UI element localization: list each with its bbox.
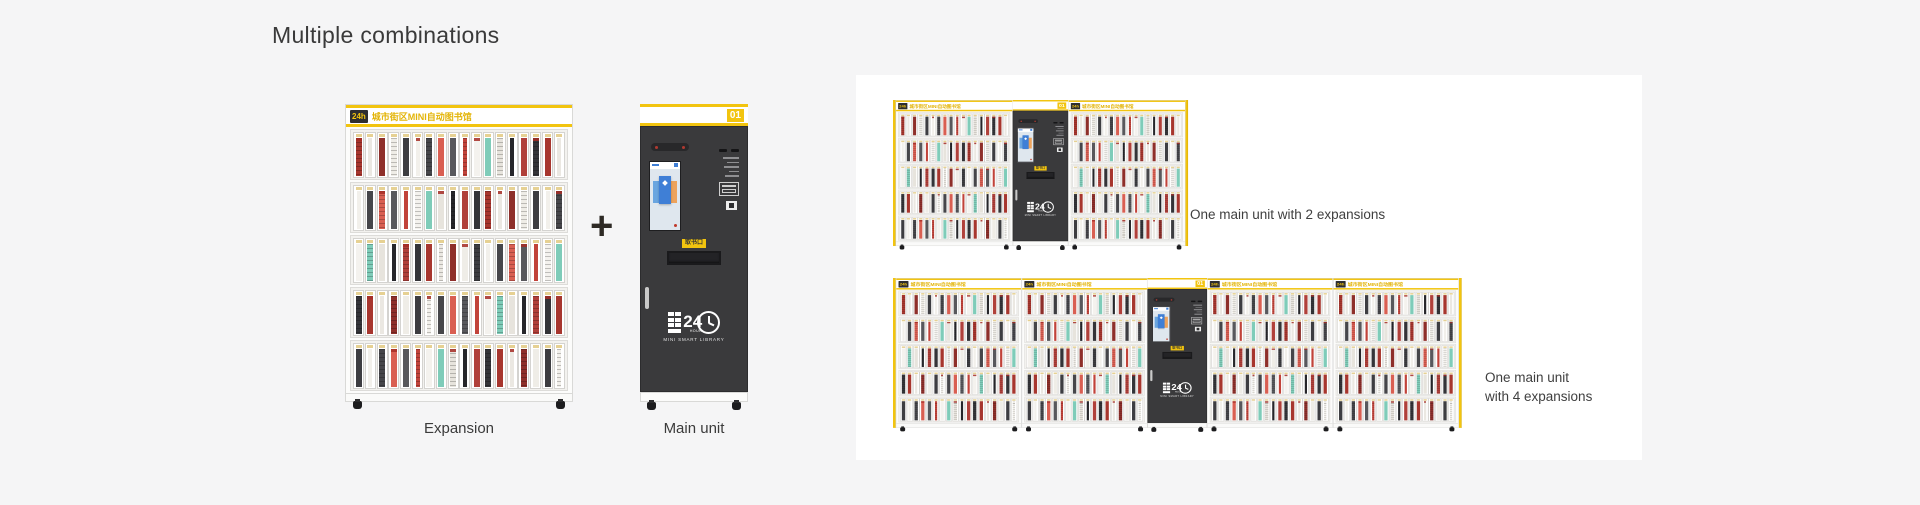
book-slot [1303, 292, 1309, 315]
book-spine [956, 117, 958, 136]
unit-header: 01 [1013, 100, 1069, 111]
book-spine [1098, 194, 1101, 213]
book-slot [424, 132, 435, 178]
book-spine [1365, 401, 1368, 420]
book-slot [1117, 398, 1123, 421]
book-slot [1403, 292, 1409, 315]
slot-tag [415, 240, 421, 243]
caster-wheel [1026, 427, 1031, 431]
book-slot [1316, 319, 1322, 342]
book-slot [1257, 372, 1263, 395]
book-spine [1352, 295, 1355, 314]
book-spine [1417, 348, 1420, 367]
book-spine [1232, 295, 1235, 314]
slot-tag [415, 134, 421, 137]
book-spine [1106, 322, 1108, 341]
book-slot [1003, 191, 1009, 213]
shelf-icon-row [668, 323, 682, 327]
book-spine [1391, 295, 1394, 314]
book-slot [1251, 372, 1257, 395]
book-slot [518, 238, 529, 284]
book-slot [1283, 345, 1289, 368]
book-slot [1303, 319, 1309, 342]
book-slot [542, 132, 553, 178]
book-slot [1225, 372, 1231, 395]
book-slot [1039, 292, 1045, 315]
cabinet-header-text: 城市街区MINI自动图书馆 [1082, 103, 1133, 109]
book-slot [1109, 140, 1115, 162]
book-slot [554, 290, 565, 336]
caster-wheel [1060, 246, 1065, 250]
book-slot [1422, 319, 1428, 342]
slot-tag [356, 134, 362, 137]
book-slot [1170, 114, 1176, 136]
book-spine [485, 296, 491, 334]
book-slot [1133, 165, 1139, 187]
book-spine [1317, 348, 1320, 367]
book-spine [439, 244, 443, 282]
book-slot [1403, 372, 1409, 395]
book-spine [1040, 295, 1043, 314]
book-slot [412, 238, 423, 284]
book-slot [483, 290, 494, 336]
book-slot [1238, 372, 1244, 395]
book-spine [1291, 375, 1294, 394]
book-slot [365, 185, 376, 231]
main-unit-kiosk: 01取书口24HOURMINI SMART LIBRARY [1147, 278, 1207, 428]
pickup-label: 取书口 [682, 239, 706, 248]
book-slot [495, 132, 506, 178]
book-spine [1141, 168, 1143, 187]
caster-wheel [900, 427, 905, 431]
book-slot [1290, 345, 1296, 368]
book-spine [1430, 295, 1433, 314]
book-spine [509, 244, 515, 282]
slot-tag [556, 134, 562, 137]
book-spine [521, 138, 527, 176]
kiosk-front-panel: 取书口24HOURMINI SMART LIBRARY [1147, 289, 1207, 423]
book-spine [967, 322, 970, 341]
book-slot [1151, 140, 1157, 162]
book-spine [534, 244, 538, 282]
book-slot [1078, 372, 1084, 395]
book-spine [1116, 117, 1119, 136]
book-spine [974, 220, 977, 239]
book-slot [1072, 372, 1078, 395]
book-spine [1047, 322, 1050, 341]
book-spine [980, 220, 982, 239]
book-spine [1125, 322, 1128, 341]
book-slot [933, 319, 939, 342]
slot-tag [403, 187, 409, 190]
cabinet-base [896, 423, 1021, 427]
book-slot [900, 398, 906, 421]
book-spine [1105, 220, 1107, 239]
book-slot [930, 114, 936, 136]
unit-header: 24h城市街区MINI自动图书馆 [1208, 279, 1333, 290]
book-spine [1093, 295, 1096, 314]
book-pickup-slot [1162, 352, 1192, 359]
reader-slot [722, 185, 736, 187]
book-spine [498, 191, 502, 229]
book-slot [1416, 372, 1422, 395]
book-slot [1296, 292, 1302, 315]
book-slot [436, 290, 447, 336]
key-panel [1057, 147, 1063, 151]
book-slot [948, 140, 954, 162]
book-spine [1424, 295, 1426, 314]
slot-tag [391, 345, 397, 348]
slot-tag [379, 187, 385, 190]
screen-cards [1153, 313, 1170, 335]
page-title: Multiple combinations [272, 22, 499, 49]
reader-window [1055, 141, 1062, 143]
book-spine [1110, 168, 1113, 187]
book-spine [915, 401, 918, 420]
book-spine [1417, 295, 1420, 314]
book-spine [1067, 401, 1070, 420]
book-spine [1053, 348, 1056, 367]
book-spine [986, 220, 989, 239]
book-slot [1026, 398, 1032, 421]
book-slot [1085, 398, 1091, 421]
instruction-line [725, 175, 739, 177]
book-spine [380, 296, 384, 334]
book-spine [920, 168, 922, 187]
book-slot [926, 292, 932, 315]
book-slot [1046, 292, 1052, 315]
book-slot [918, 140, 924, 162]
book-slot [1442, 292, 1448, 315]
book-spine [1132, 322, 1134, 341]
book-spine [928, 401, 931, 420]
book-slot [991, 165, 997, 187]
book-spine [943, 117, 946, 136]
book-spine [1410, 322, 1413, 341]
book-spine [950, 220, 953, 239]
book-spine [557, 138, 561, 176]
book-slot [952, 398, 958, 421]
book-spine [1232, 401, 1235, 420]
book-spine [1298, 322, 1301, 341]
book-slot [920, 372, 926, 395]
caster-wheel [1198, 428, 1203, 432]
book-slot [1290, 319, 1296, 342]
book-spine [919, 220, 922, 239]
book-spine [938, 194, 940, 213]
expansion-cabinet: 24h城市街区MINI自动图书馆 [896, 278, 1022, 428]
book-pickup-slot [1027, 172, 1055, 179]
book-spine [1252, 401, 1255, 420]
book-spine [1424, 348, 1427, 367]
book-spine [1430, 401, 1433, 420]
book-spine [1324, 401, 1326, 420]
book-slot [926, 398, 932, 421]
book-slot [1139, 217, 1145, 239]
book-spine [404, 191, 408, 229]
book-spine [993, 322, 996, 341]
book-slot [907, 319, 913, 342]
book-slot [1130, 292, 1136, 315]
book-slot [1039, 345, 1045, 368]
book-slot [436, 343, 447, 389]
book-slot [448, 238, 459, 284]
book-slot [930, 165, 936, 187]
book-spine [1239, 401, 1242, 420]
book-slot [1212, 292, 1218, 315]
book-spine [1378, 348, 1381, 367]
book-spine [944, 168, 946, 187]
book-spine [1122, 168, 1125, 187]
book-slot [1005, 292, 1011, 315]
book-slot [906, 191, 912, 213]
book-spine [968, 168, 970, 187]
book-slot [918, 165, 924, 187]
book-spine [1119, 348, 1122, 367]
24h-logo: 24HOURMINI SMART LIBRARY [1148, 382, 1207, 398]
book-spine [1339, 348, 1342, 367]
book-slot [933, 372, 939, 395]
book-slot [1264, 292, 1270, 315]
book-spine [1398, 295, 1400, 314]
book-spine [533, 191, 539, 229]
instruction-line [1195, 307, 1202, 308]
book-spine [1028, 322, 1030, 341]
book-spine [928, 375, 931, 394]
combined-unit-one-main-four-expansions: 24h城市街区MINI自动图书馆24h城市街区MINI自动图书馆01取书口24H… [893, 278, 1462, 428]
book-spine [1246, 295, 1248, 314]
book-slot [1357, 292, 1363, 315]
caster-wheel [1072, 246, 1077, 250]
book-spine [1424, 375, 1427, 394]
book-slot [1435, 345, 1441, 368]
book-spine [1080, 322, 1082, 341]
book-spine [1047, 375, 1050, 394]
book-spine [1147, 117, 1150, 136]
book-spine [1404, 295, 1407, 314]
book-slot [1091, 345, 1097, 368]
book-spine [915, 322, 918, 341]
book-spine [1139, 401, 1141, 420]
book-slot [471, 132, 482, 178]
book-slot [495, 185, 506, 231]
book-spine [510, 138, 514, 176]
slot-tag [533, 187, 539, 190]
book-spine [1053, 295, 1056, 314]
book-slot [936, 140, 942, 162]
book-slot [900, 140, 906, 162]
book-spine [1117, 168, 1119, 187]
book-slot [1309, 319, 1315, 342]
book-spine [931, 143, 934, 162]
book-slot [1270, 345, 1276, 368]
book-spine [1265, 348, 1268, 367]
touch-screen [649, 161, 681, 231]
book-slot [959, 398, 965, 421]
book-spine [1372, 295, 1374, 314]
slot-tag [438, 240, 444, 243]
book-spine [1093, 322, 1096, 341]
book-slot [377, 238, 388, 284]
book-spine [1098, 220, 1101, 239]
book-spine [921, 322, 924, 341]
book-slot [942, 191, 948, 213]
book-slot [1127, 140, 1133, 162]
book-slot [1072, 165, 1078, 187]
key-panel [726, 201, 737, 210]
book-slot [530, 185, 541, 231]
book-slot [388, 185, 399, 231]
book-slot [1370, 292, 1376, 315]
book-slot [1277, 345, 1283, 368]
book-spine [1278, 401, 1281, 420]
book-spine [1339, 375, 1342, 394]
book-spine [1171, 168, 1174, 187]
book-slot [1115, 140, 1121, 162]
book-spine [919, 143, 922, 162]
book-slot [946, 292, 952, 315]
book-slot [936, 217, 942, 239]
book-spine [1134, 168, 1137, 187]
book-spine [1138, 375, 1141, 394]
kiosk-base [640, 392, 748, 402]
caster-wheel [1449, 427, 1454, 431]
book-spine [1437, 375, 1440, 394]
book-spine [921, 295, 924, 314]
shelf-row [1071, 112, 1183, 137]
24h-logo-row: 24HOUR [668, 311, 720, 334]
book-slot [972, 398, 978, 421]
book-spine [999, 375, 1002, 394]
book-spine [1450, 348, 1453, 367]
book-spine [1239, 295, 1242, 314]
book-spine [902, 322, 904, 341]
book-slot [1322, 398, 1328, 421]
book-slot [939, 372, 945, 395]
book-spine [1220, 401, 1222, 420]
book-slot [1376, 372, 1382, 395]
screen-cards [650, 174, 680, 218]
book-spine [533, 349, 539, 387]
book-spine [947, 322, 950, 341]
book-spine [932, 220, 934, 239]
book-spine [391, 349, 397, 387]
book-spine [545, 296, 551, 334]
unit-header: 24h城市街区MINI自动图书馆 [1069, 100, 1185, 111]
book-spine [973, 401, 976, 420]
book-spine [980, 117, 982, 136]
book-spine [919, 117, 922, 136]
book-slot [400, 132, 411, 178]
book-slot [1316, 398, 1322, 421]
book-slot [1097, 217, 1103, 239]
book-spine [1226, 322, 1229, 341]
book-slot [1283, 398, 1289, 421]
book-spine [974, 168, 977, 187]
book-spine [1171, 143, 1173, 162]
slot-tag [356, 240, 362, 243]
book-slot [1104, 319, 1110, 342]
book-slot [1170, 217, 1176, 239]
slot-tag [533, 134, 539, 137]
book-slot [1039, 398, 1045, 421]
book-spine [1040, 348, 1043, 367]
book-spine [1346, 295, 1348, 314]
book-slot [973, 140, 979, 162]
slot-tag [462, 187, 468, 190]
book-spine [987, 295, 989, 314]
book-spine [998, 117, 1001, 136]
book-spine [1285, 401, 1288, 420]
book-slot [1370, 345, 1376, 368]
book-spine [908, 348, 911, 367]
book-spine [1006, 401, 1009, 420]
book-spine [1005, 220, 1007, 239]
book-spine [935, 295, 937, 314]
slot-tag [462, 240, 468, 243]
caster-wheel [1138, 427, 1143, 431]
book-slot [1376, 319, 1382, 342]
book-slot [1344, 398, 1350, 421]
book-spine [462, 296, 468, 334]
book-spine [947, 401, 950, 420]
slot-tag [497, 345, 503, 348]
book-slot [926, 372, 932, 395]
book-shelves [896, 111, 1012, 241]
book-slot [948, 165, 954, 187]
kiosk-front-panel: 取书口24HOURMINI SMART LIBRARY [1013, 111, 1069, 241]
book-slot [920, 319, 926, 342]
book-spine [1324, 295, 1326, 314]
shelf-row [350, 129, 568, 180]
book-spine [1226, 295, 1229, 314]
book-slot [972, 319, 978, 342]
book-slot [1416, 319, 1422, 342]
book-spine [1165, 220, 1168, 239]
book-slot [1065, 398, 1071, 421]
book-spine [925, 168, 928, 187]
book-slot [1117, 345, 1123, 368]
shelf-icon-row [668, 312, 682, 316]
book-spine [1132, 401, 1135, 420]
shelf-icon-row [1163, 383, 1170, 385]
book-slot [1109, 217, 1115, 239]
book-slot [1225, 345, 1231, 368]
book-spine [1378, 375, 1380, 394]
book-slot [918, 191, 924, 213]
book-spine [941, 401, 944, 420]
book-spine [403, 296, 409, 334]
book-spine [416, 138, 420, 176]
book-spine [901, 194, 904, 213]
book-slot [1065, 292, 1071, 315]
book-spine [934, 375, 937, 394]
book-slot [554, 132, 565, 178]
side-control-column [1050, 122, 1063, 152]
book-slot [985, 345, 991, 368]
book-spine [521, 191, 527, 229]
book-spine [1134, 117, 1137, 136]
book-spine [1450, 295, 1452, 314]
slot-tag [367, 134, 373, 137]
book-spine [1397, 375, 1400, 394]
book-spine [1098, 168, 1101, 187]
caster-wheel [1324, 427, 1329, 431]
book-slot [997, 114, 1003, 136]
instruction-line [1059, 133, 1064, 134]
book-slot [954, 217, 960, 239]
book-slot [1072, 114, 1078, 136]
